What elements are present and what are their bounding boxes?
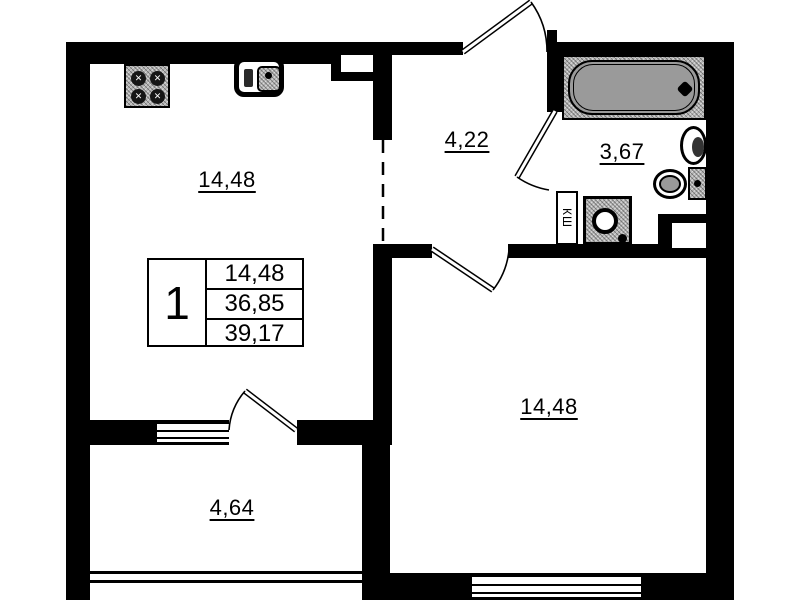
bathroom-door-icon [517,111,555,190]
duct-shaft-label: КШ [560,208,574,228]
kitchen-living-area-label: 14,48 [198,167,256,193]
washing-machine-icon [583,196,632,245]
washbasin-icon [680,126,707,165]
wall-living-bottom-left [88,420,157,445]
bathtub-icon [562,55,706,120]
balcony-door-icon [229,391,296,430]
wall-right [706,42,734,573]
wall-living-bottom-right [297,420,392,445]
wall-hall-bedroom [392,244,432,258]
duct-shaft-box: КШ [556,191,578,245]
washer-drum-icon [592,208,618,234]
wall-top-hall [331,42,463,55]
wall-top-kitchen [66,42,331,64]
balcony-window [157,420,229,445]
legend-table: 1 14,48 36,85 39,17 [147,258,304,347]
wall-bedroom-bottom-right [641,573,734,600]
wall-bedroom-bottom-left [390,573,472,600]
kitchen-sink-icon [234,57,284,97]
wall-balcony-bedroom [362,445,390,600]
stove-icon: ✕ ✕ ✕ ✕ [124,64,170,108]
apartment-number: 1 [149,260,207,345]
balcony-glazing-line-1 [90,571,362,574]
legend-total-area: 39,17 [207,320,302,348]
bedroom-door-icon [432,249,509,290]
entrance-door-icon [463,2,547,52]
wall-bathroom-left [547,55,562,112]
toilet-icon [653,167,708,202]
floor-plan: ✕ ✕ ✕ ✕ КШ [0,0,799,600]
bathroom-area-label: 3,67 [600,139,645,165]
bedroom-window [472,573,641,600]
legend-apartment-area: 36,85 [207,290,302,320]
bedroom-area-label: 14,48 [520,394,578,420]
legend-living-area: 14,48 [207,260,302,290]
wall-left [66,42,90,600]
balcony-area-label: 4,64 [210,495,255,521]
duct-niche-opening [672,223,706,248]
balcony-glazing-line-2 [90,580,362,583]
wall-kitchen-hall-stub [373,55,392,140]
wall-living-bedroom [373,244,392,420]
hallway-area-label: 4,22 [445,127,490,153]
